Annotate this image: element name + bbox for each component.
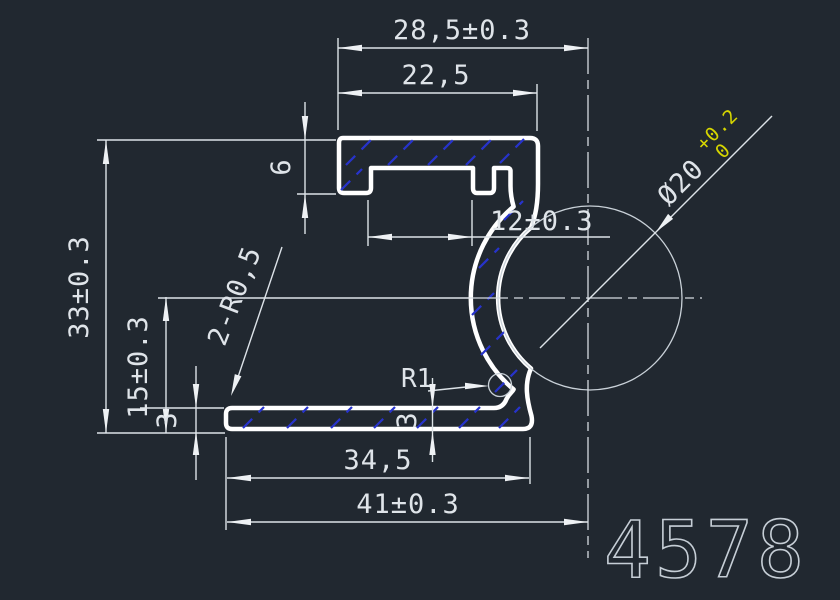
dim-slot-opening-text: 12±0.3 [490,206,594,237]
dim-top-inner[interactable]: 22,5 [338,60,537,131]
dim-left-overall-text: 33±0.3 [64,235,95,339]
note-corner-radius-text: 2-R0,5 [202,242,268,350]
dim-bottom-inner-text: 34,5 [343,445,412,476]
dim-left-overall[interactable]: 33±0.3 [64,140,336,433]
dim-groove-diameter-text: Ø20 [652,153,711,212]
dim-groove-center-height-text: 15±0.3 [123,315,154,419]
dim-top-inner-text: 22,5 [401,60,470,91]
dim-foot-depth-text: 6 [266,158,297,175]
dim-bottom-overall-text: 41±0.3 [356,489,460,520]
dim-slot-opening[interactable]: 12±0.3 [368,200,610,246]
dim-flange-thickness-right-text: 3 [392,411,423,428]
dim-top-overall-text: 28,5±0.3 [393,15,531,46]
note-fillet-r1-text: R1 [401,364,432,394]
note-corner-radius[interactable]: 2-R0,5 [202,242,282,396]
section-hatch [243,139,524,428]
profile-outline[interactable] [226,138,538,429]
drawing-viewport[interactable]: 28,5±0.3 22,5 33±0.3 15±0.3 6 [0,0,840,600]
dim-flange-thickness-left-text: 3 [152,411,183,428]
part-number: 4578 [604,506,808,596]
dim-foot-depth[interactable]: 6 [266,102,336,234]
cad-drawing-canvas[interactable]: 28,5±0.3 22,5 33±0.3 15±0.3 6 [0,0,840,600]
dim-bottom-overall[interactable]: 41±0.3 [227,489,588,525]
